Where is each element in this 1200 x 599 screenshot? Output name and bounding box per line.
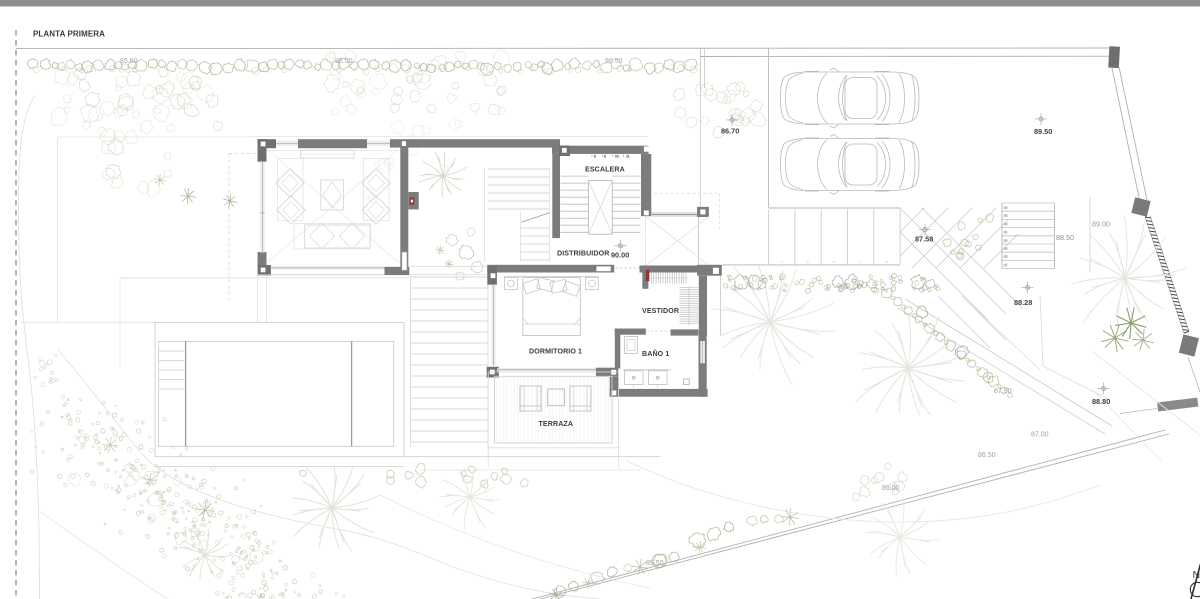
svg-text:DISTRIBUIDOR: DISTRIBUIDOR	[557, 250, 609, 258]
svg-text:20: 20	[1004, 238, 1008, 242]
svg-text:86.70: 86.70	[721, 127, 739, 136]
svg-text:21: 21	[1004, 230, 1008, 234]
svg-text:85.50: 85.50	[646, 560, 664, 567]
svg-text:89.50: 89.50	[1034, 127, 1052, 136]
svg-text:ESCALERA: ESCALERA	[585, 166, 625, 174]
svg-text:88.50: 88.50	[1056, 233, 1074, 242]
svg-text:24: 24	[1004, 206, 1008, 210]
svg-text:85.50: 85.50	[120, 58, 138, 65]
svg-text:86.00: 86.00	[335, 58, 353, 65]
svg-text:86.50: 86.50	[605, 58, 623, 65]
svg-text:TERRAZA: TERRAZA	[539, 420, 574, 428]
svg-text:9: 9	[604, 155, 606, 159]
svg-text:88.80: 88.80	[1092, 397, 1110, 406]
svg-text:87.58: 87.58	[915, 235, 933, 244]
svg-text:18: 18	[1004, 255, 1008, 259]
svg-text:22: 22	[1004, 222, 1008, 226]
svg-text:DORMITORIO 1: DORMITORIO 1	[529, 348, 582, 356]
svg-text:19: 19	[1004, 247, 1008, 251]
svg-text:17: 17	[1004, 263, 1008, 267]
svg-text:86.00: 86.00	[882, 485, 900, 492]
svg-text:86.50: 86.50	[978, 452, 996, 459]
svg-text:8: 8	[594, 155, 596, 159]
svg-text:PLANTA PRIMERA: PLANTA PRIMERA	[33, 30, 105, 39]
svg-text:11: 11	[626, 155, 630, 159]
svg-text:23: 23	[1004, 214, 1008, 218]
svg-text:90.00: 90.00	[611, 251, 629, 260]
svg-text:88.28: 88.28	[1014, 298, 1032, 307]
svg-text:10: 10	[615, 155, 619, 159]
svg-text:89.00: 89.00	[1092, 220, 1110, 229]
svg-text:BAÑO 1: BAÑO 1	[642, 349, 669, 358]
svg-text:87.00: 87.00	[1031, 432, 1049, 439]
svg-text:VESTIDOR: VESTIDOR	[642, 307, 679, 315]
